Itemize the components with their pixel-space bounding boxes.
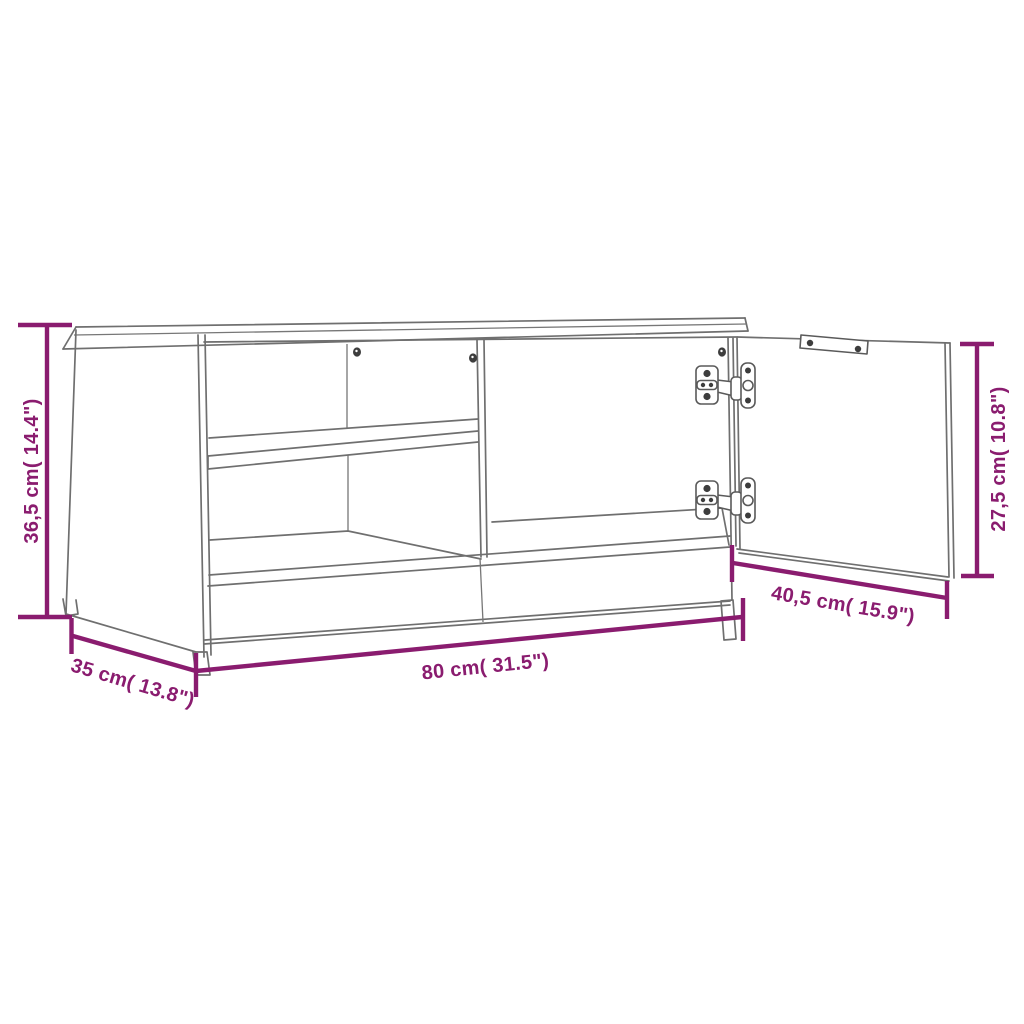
plate-screw-icon: [807, 340, 813, 346]
middle-shelf: [208, 419, 478, 469]
hinge-cup: [743, 381, 753, 391]
top-panel: [63, 318, 748, 349]
hinge-top: [696, 363, 755, 408]
dimension-annotations: 36,5 cm( 14.4") 35 cm( 13.8") 80 cm( 31.…: [18, 325, 1010, 712]
divider-left-edge: [477, 340, 481, 557]
left-side-panel: [63, 330, 211, 657]
dimension-height: 36,5 cm( 14.4"): [18, 325, 72, 617]
dimension-label-width: 80 cm( 31.5"): [421, 650, 550, 685]
hinge-slot: [697, 381, 717, 390]
left-compartment-floor: [210, 531, 481, 559]
door-bottom-edge-1: [737, 549, 948, 577]
cabinet-drawing: [63, 318, 954, 675]
dimension-label-height: 36,5 cm( 14.4"): [21, 398, 43, 543]
dimension-label-door-height: 27,5 cm( 10.8"): [988, 386, 1010, 531]
open-door: [737, 335, 954, 581]
dimension-door-width: 40,5 cm( 15.9"): [732, 545, 947, 628]
plate-screw-icon: [855, 346, 861, 352]
door-free-edge-outer: [950, 343, 954, 578]
diagram-canvas: 36,5 cm( 14.4") 35 cm( 13.8") 80 cm( 31.…: [0, 0, 1024, 1024]
back-left-foot: [63, 599, 78, 616]
interior: [208, 340, 729, 559]
screw-holes: [353, 347, 726, 362]
product-dimension-diagram: 36,5 cm( 14.4") 35 cm( 13.8") 80 cm( 31.…: [0, 0, 1024, 1024]
bottom-rail: [193, 536, 736, 675]
rail-bottom-edge-1: [205, 601, 730, 640]
hinge-screw-icon: [703, 370, 710, 377]
hinge-screw-icon: [703, 393, 710, 400]
rail-center-seam: [480, 558, 483, 622]
hinge-cup-screw-icon: [745, 368, 751, 374]
dimension-door-height: 27,5 cm( 10.8"): [960, 344, 1010, 576]
hinge-bottom: [696, 478, 755, 523]
side-back-edge: [66, 330, 76, 614]
front-left-edge-inner: [205, 335, 211, 655]
screw-hole-highlight: [720, 350, 722, 352]
side-bottom-edge: [66, 614, 196, 652]
screw-hole-highlight: [471, 356, 473, 358]
screw-hole-highlight: [355, 350, 357, 352]
rail-top-edge-2: [208, 547, 730, 586]
center-divider: [477, 340, 487, 557]
divider-right-edge: [484, 340, 487, 557]
dimension-label-depth: 35 cm( 13.8"): [68, 655, 197, 712]
door-hinge-edge: [737, 337, 740, 549]
front-left-edge-outer: [198, 335, 204, 657]
hinge-slot-screw-icon: [701, 383, 705, 387]
left-floor-edges: [210, 531, 481, 559]
top-panel-left-end: [63, 327, 76, 349]
door-free-edge-inner: [945, 343, 949, 577]
dimension-width: 80 cm( 31.5"): [196, 598, 743, 697]
hinge-cup-screw-icon: [745, 398, 751, 404]
shelf-front-bottom-edge: [208, 442, 478, 469]
dimension-depth: 35 cm( 13.8"): [68, 618, 197, 712]
rail-top-edge-1: [209, 536, 730, 575]
hinge-slot-screw-icon: [709, 383, 713, 387]
